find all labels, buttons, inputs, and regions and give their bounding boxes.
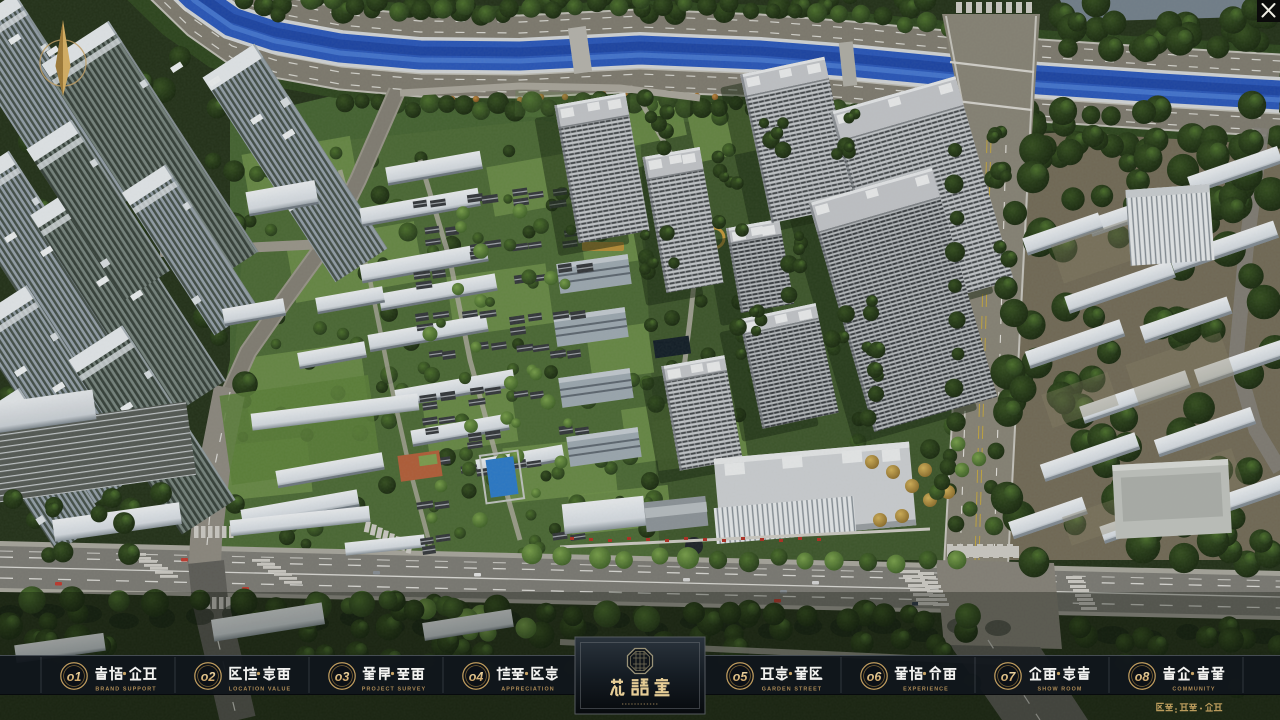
svg-text:o5: o5 [733,670,749,684]
svg-text:EXPERIENCE: EXPERIENCE [903,687,949,693]
svg-text:o6: o6 [867,670,883,684]
svg-text:COMMUNITY: COMMUNITY [1172,687,1215,693]
svg-text:o8: o8 [1135,670,1150,684]
svg-text:o2: o2 [201,670,216,684]
svg-text:LOCATION VALUE: LOCATION VALUE [229,687,292,693]
svg-text:APPRECIATION: APPRECIATION [501,687,555,693]
svg-text:PROJECT SURVEY: PROJECT SURVEY [362,687,426,693]
svg-text:o3: o3 [335,670,350,684]
svg-text:BRAND SUPPORT: BRAND SUPPORT [95,687,156,693]
svg-text:o7: o7 [1001,670,1017,684]
svg-text:o4: o4 [469,670,484,684]
svg-text:o1: o1 [67,670,82,684]
svg-text:GARDEN STREET: GARDEN STREET [762,687,822,693]
svg-text:SHOW ROOM: SHOW ROOM [1038,687,1083,693]
